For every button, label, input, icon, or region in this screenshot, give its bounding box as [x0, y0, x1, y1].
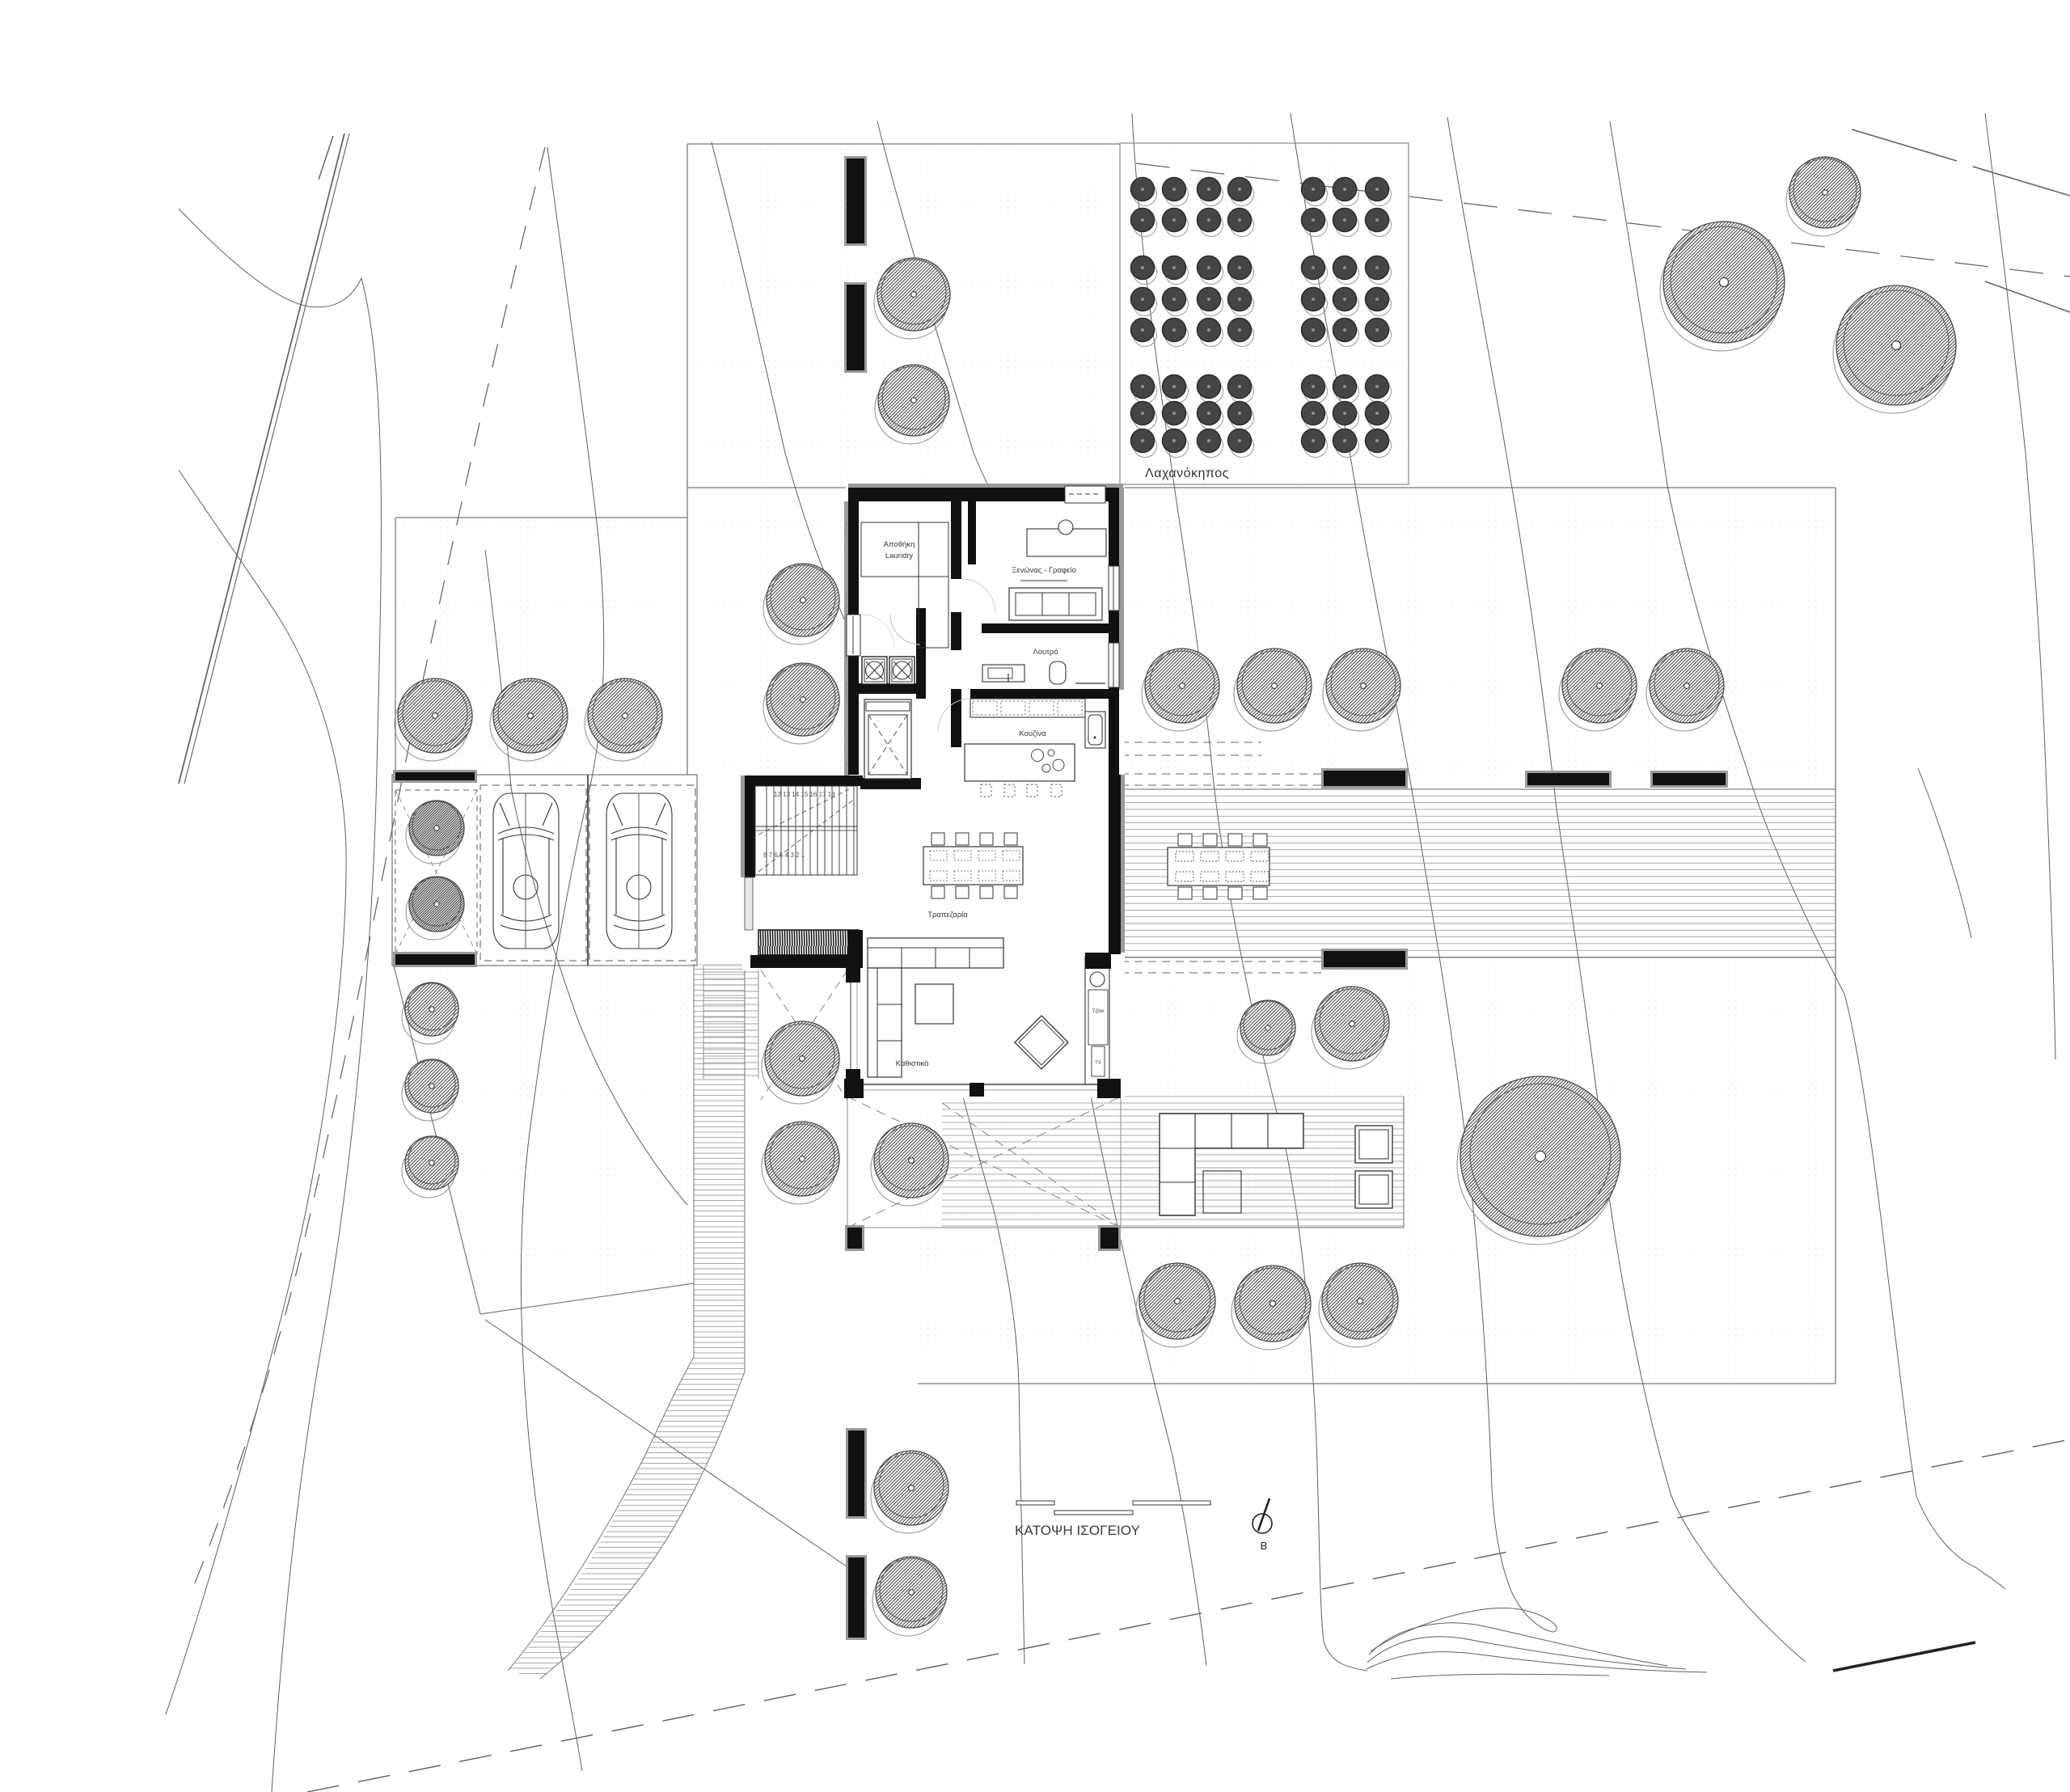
svg-text:Καθιστικό: Καθιστικό — [896, 1059, 929, 1068]
svg-text:8 7 6 5 4 3 2 1: 8 7 6 5 4 3 2 1 — [763, 852, 805, 859]
svg-text:ΚΑΤΟΨΗ ΙΣΟΓΕΙΟΥ: ΚΑΤΟΨΗ ΙΣΟΓΕΙΟΥ — [1015, 1523, 1140, 1538]
svg-text:Αποθήκη: Αποθήκη — [884, 540, 915, 549]
svg-text:Τραπεζαρία: Τραπεζαρία — [927, 911, 968, 919]
svg-text:12 13 14 15 16 17 18: 12 13 14 15 16 17 18 — [774, 791, 835, 798]
svg-text:B: B — [1261, 1540, 1268, 1552]
svg-text:Τζάκι: Τζάκι — [1092, 1008, 1105, 1014]
svg-text:Ξενώνας - Γραφείο: Ξενώνας - Γραφείο — [1012, 566, 1076, 575]
svg-text:Κουζίνα: Κουζίνα — [1019, 729, 1046, 738]
svg-text:Λουτρό: Λουτρό — [1033, 648, 1058, 657]
svg-text:Laundry: Laundry — [885, 552, 914, 560]
svg-text:Λαχανόκηπος: Λαχανόκηπος — [1145, 467, 1229, 480]
svg-text:TV: TV — [1095, 1061, 1101, 1066]
